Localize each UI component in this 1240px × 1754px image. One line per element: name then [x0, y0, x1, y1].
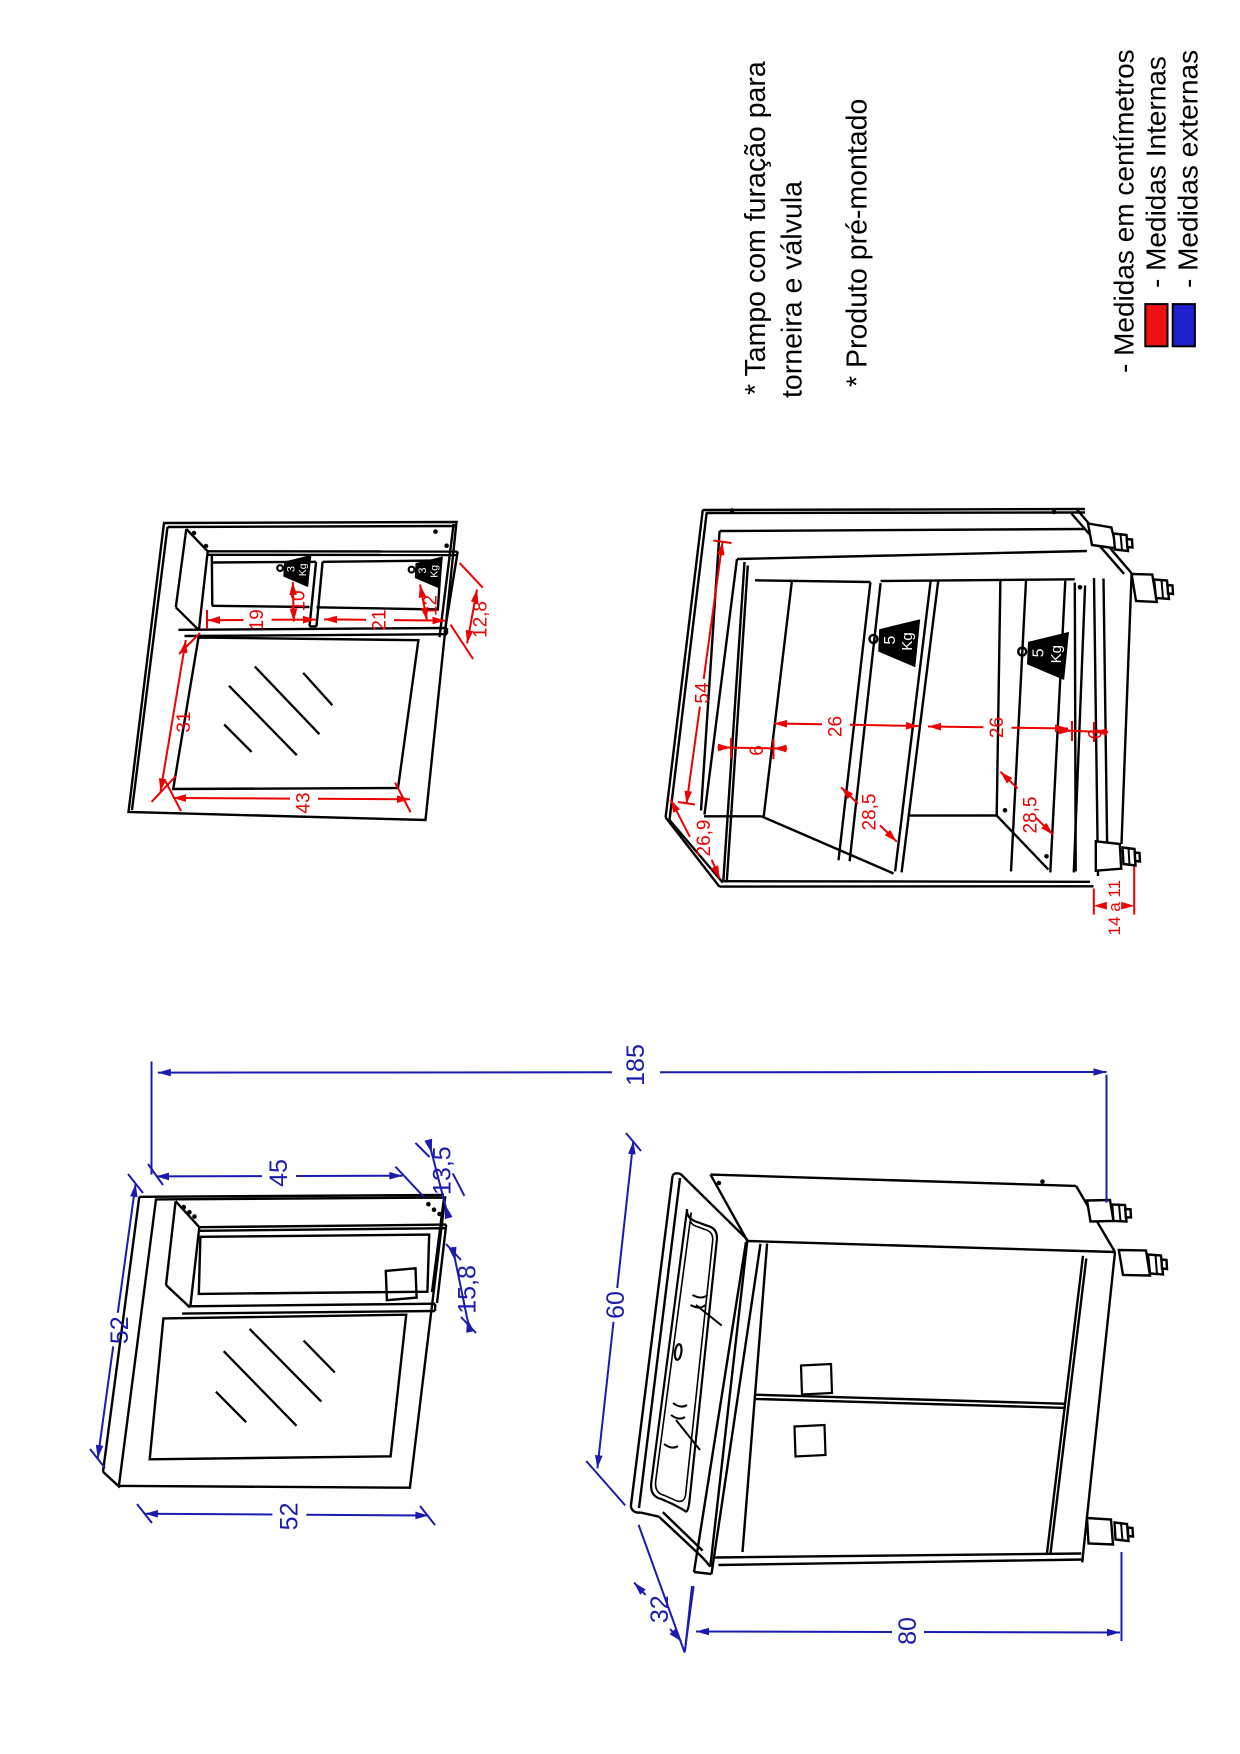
- svg-text:15,8: 15,8: [453, 1265, 481, 1314]
- svg-text:54: 54: [693, 682, 714, 704]
- svg-text:45: 45: [265, 1159, 293, 1187]
- svg-text:6: 6: [1086, 729, 1107, 740]
- svg-text:5: 5: [1031, 648, 1048, 657]
- svg-text:5: 5: [882, 636, 899, 645]
- svg-text:Kg: Kg: [297, 563, 309, 576]
- svg-text:28,5: 28,5: [1021, 797, 1042, 834]
- svg-text:14 a 11: 14 a 11: [1105, 880, 1124, 935]
- svg-text:21: 21: [370, 609, 391, 630]
- svg-text:80: 80: [894, 1617, 922, 1645]
- svg-text:3: 3: [417, 567, 429, 573]
- svg-text:13,5: 13,5: [429, 1146, 457, 1195]
- svg-text:6: 6: [747, 745, 768, 756]
- svg-text:32: 32: [646, 1595, 674, 1623]
- svg-text:19: 19: [247, 609, 268, 630]
- svg-text:* Produto pré-montado: * Produto pré-montado: [841, 99, 873, 387]
- svg-text:Kg: Kg: [429, 565, 441, 578]
- svg-text:31: 31: [174, 711, 195, 732]
- svg-text:12: 12: [421, 595, 442, 616]
- svg-text:52: 52: [106, 1316, 134, 1344]
- svg-text:- Medidas em centímetros: - Medidas em centímetros: [1109, 49, 1140, 373]
- svg-text:43: 43: [294, 792, 315, 813]
- svg-text:26,9: 26,9: [694, 820, 715, 857]
- svg-text:26: 26: [987, 717, 1008, 738]
- svg-text:60: 60: [602, 1291, 630, 1319]
- svg-text:52: 52: [275, 1502, 303, 1530]
- svg-text:torneira e válvula: torneira e válvula: [776, 181, 808, 398]
- svg-text:Kg: Kg: [1048, 645, 1065, 663]
- svg-text:* Tampo com furação para: * Tampo com furação para: [740, 61, 772, 395]
- svg-text:28,5: 28,5: [860, 794, 881, 831]
- svg-text:Kg: Kg: [899, 632, 916, 650]
- svg-text:185: 185: [622, 1044, 650, 1086]
- svg-text:10: 10: [289, 590, 310, 611]
- svg-text:3: 3: [285, 566, 297, 572]
- svg-text:12,8: 12,8: [471, 601, 492, 638]
- svg-text:- Medidas Internas: - Medidas Internas: [1141, 56, 1172, 288]
- svg-text:26: 26: [826, 716, 847, 737]
- svg-text:- Medidas externas: - Medidas externas: [1173, 50, 1204, 288]
